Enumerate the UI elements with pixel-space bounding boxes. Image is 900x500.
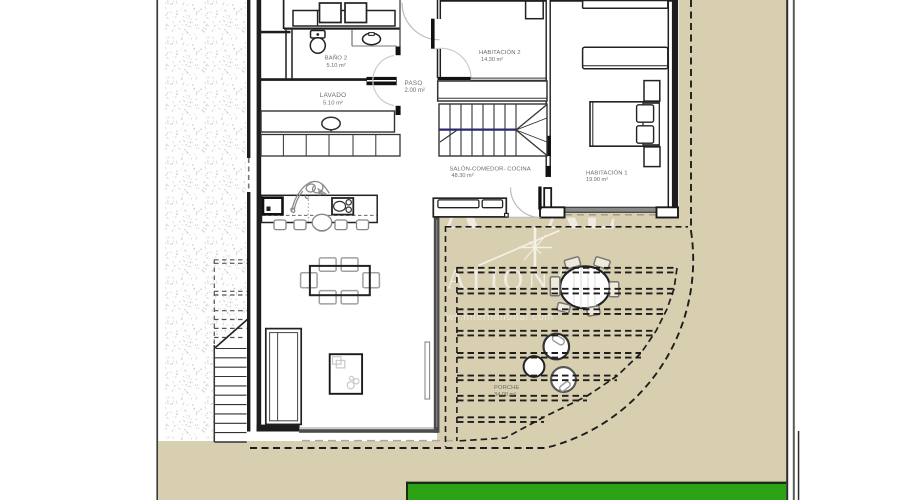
svg-text:48.30 m²: 48.30 m² bbox=[452, 173, 474, 179]
svg-text:HABITACIÓN 1: HABITACIÓN 1 bbox=[586, 170, 628, 177]
svg-text:PORCHE: PORCHE bbox=[494, 385, 519, 391]
svg-text:5.10 m²: 5.10 m² bbox=[323, 101, 343, 107]
svg-text:ws.international.com: ws.international.com bbox=[445, 311, 554, 323]
svg-text:19.90 m²: 19.90 m² bbox=[586, 177, 608, 183]
svg-text:2.00 m²: 2.00 m² bbox=[405, 88, 425, 94]
svg-text:SALÓN-COMEDOR- COCINA: SALÓN-COMEDOR- COCINA bbox=[450, 166, 531, 173]
svg-text:PASO: PASO bbox=[405, 80, 423, 87]
svg-text:5.10 m²: 5.10 m² bbox=[327, 63, 346, 69]
svg-text:14.30 m²: 14.30 m² bbox=[481, 57, 503, 63]
svg-text:34.00 m²: 34.00 m² bbox=[494, 392, 516, 398]
svg-text:BAÑO 2: BAÑO 2 bbox=[325, 55, 348, 62]
svg-text:HABITACIÓN 2: HABITACIÓN 2 bbox=[479, 49, 521, 56]
svg-text:LAVADO: LAVADO bbox=[320, 92, 347, 99]
